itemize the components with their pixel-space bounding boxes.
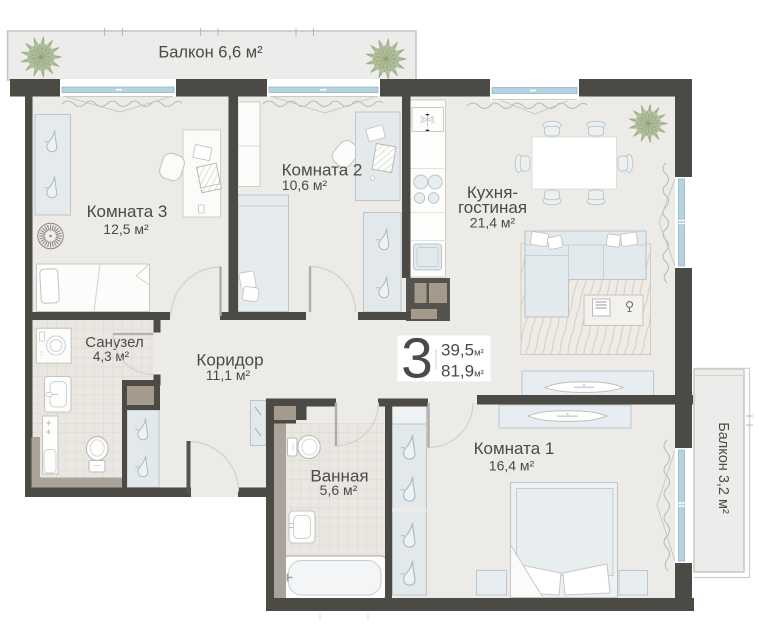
svg-text:Комната 1: Комната 1 [474, 439, 555, 458]
svg-text:Балкон 3,2 м²: Балкон 3,2 м² [715, 422, 731, 514]
svg-text:12,5 м²: 12,5 м² [103, 221, 149, 237]
svg-text:16,4 м²: 16,4 м² [489, 458, 535, 474]
svg-text:Балкон 6,6 м²: Балкон 6,6 м² [158, 44, 263, 62]
svg-text:11,1 м²: 11,1 м² [206, 367, 251, 383]
svg-text:21,4 м²: 21,4 м² [470, 215, 516, 231]
svg-text:3: 3 [401, 327, 433, 391]
svg-text:Комната 3: Комната 3 [87, 202, 168, 221]
svg-text:5,6 м²: 5,6 м² [320, 482, 358, 498]
svg-text:10,6 м²: 10,6 м² [282, 177, 328, 193]
